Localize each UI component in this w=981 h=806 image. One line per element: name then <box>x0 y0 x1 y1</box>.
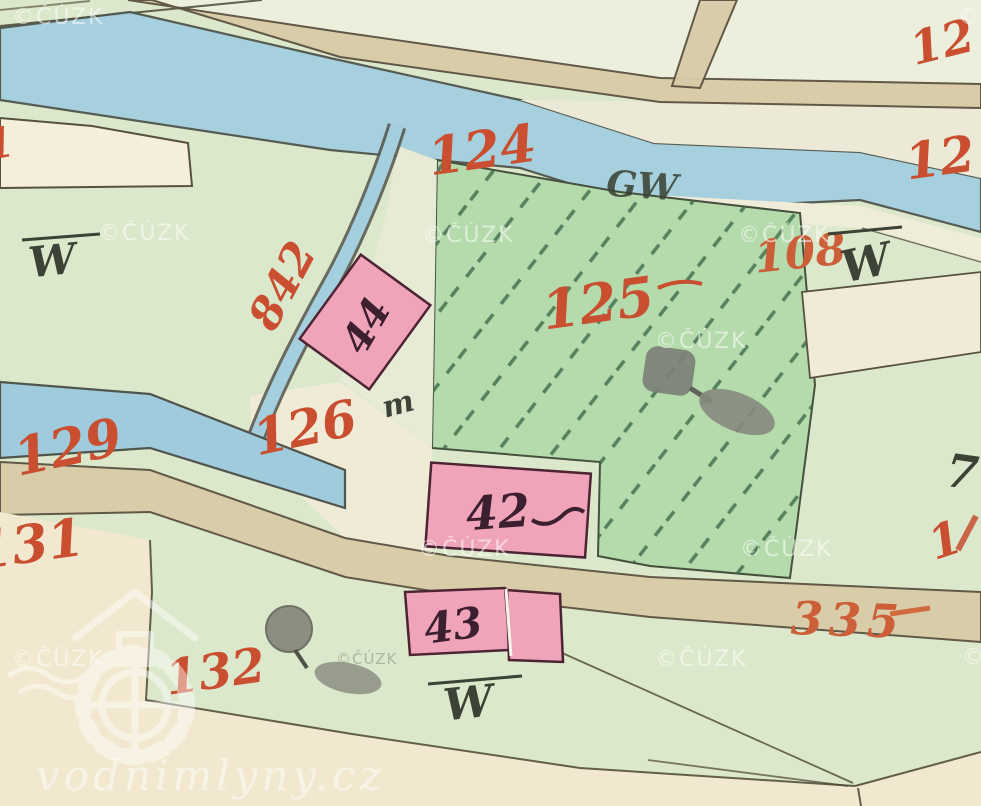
edge-label-7: 7 <box>942 443 981 501</box>
cuzk-watermark: ©ČÚZK <box>740 536 833 562</box>
building-43-number: 43 <box>421 597 486 654</box>
vodnimlyny-site-watermark: vodnimlyny.cz <box>36 751 386 800</box>
parcel-label-12-mid: 12 <box>901 123 978 191</box>
cuzk-watermark: ©ČÚZK <box>12 4 105 30</box>
cuzk-watermark-partial: ©Č <box>958 4 981 30</box>
cuzk-watermark-small: ©ČÚZK <box>336 649 397 668</box>
cadastral-map-viewport[interactable]: 44 42 43 124 125 126 129 131 132 842 108… <box>0 0 981 806</box>
building-43-annex <box>507 590 563 662</box>
culture-letter-gw: GW <box>605 163 682 210</box>
culture-letter-w-left: W <box>26 233 82 287</box>
parcel-label-335: 335 <box>790 591 906 649</box>
cuzk-watermark: ©ČÚZK <box>655 328 748 354</box>
cadastral-map-image: 44 42 43 124 125 126 129 131 132 842 108… <box>0 0 981 806</box>
cuzk-watermark-partial: ©Č <box>962 644 981 670</box>
cuzk-watermark: ©ČÚZK <box>738 222 831 248</box>
tree-symbol <box>266 606 312 652</box>
building-42-number: 42 <box>464 483 532 541</box>
cuzk-watermark: ©ČÚZK <box>655 646 748 672</box>
cuzk-watermark: ©ČÚZK <box>418 536 511 562</box>
cuzk-watermark: ©ČÚZK <box>98 220 191 246</box>
cuzk-watermark: ©ČÚZK <box>422 222 515 248</box>
